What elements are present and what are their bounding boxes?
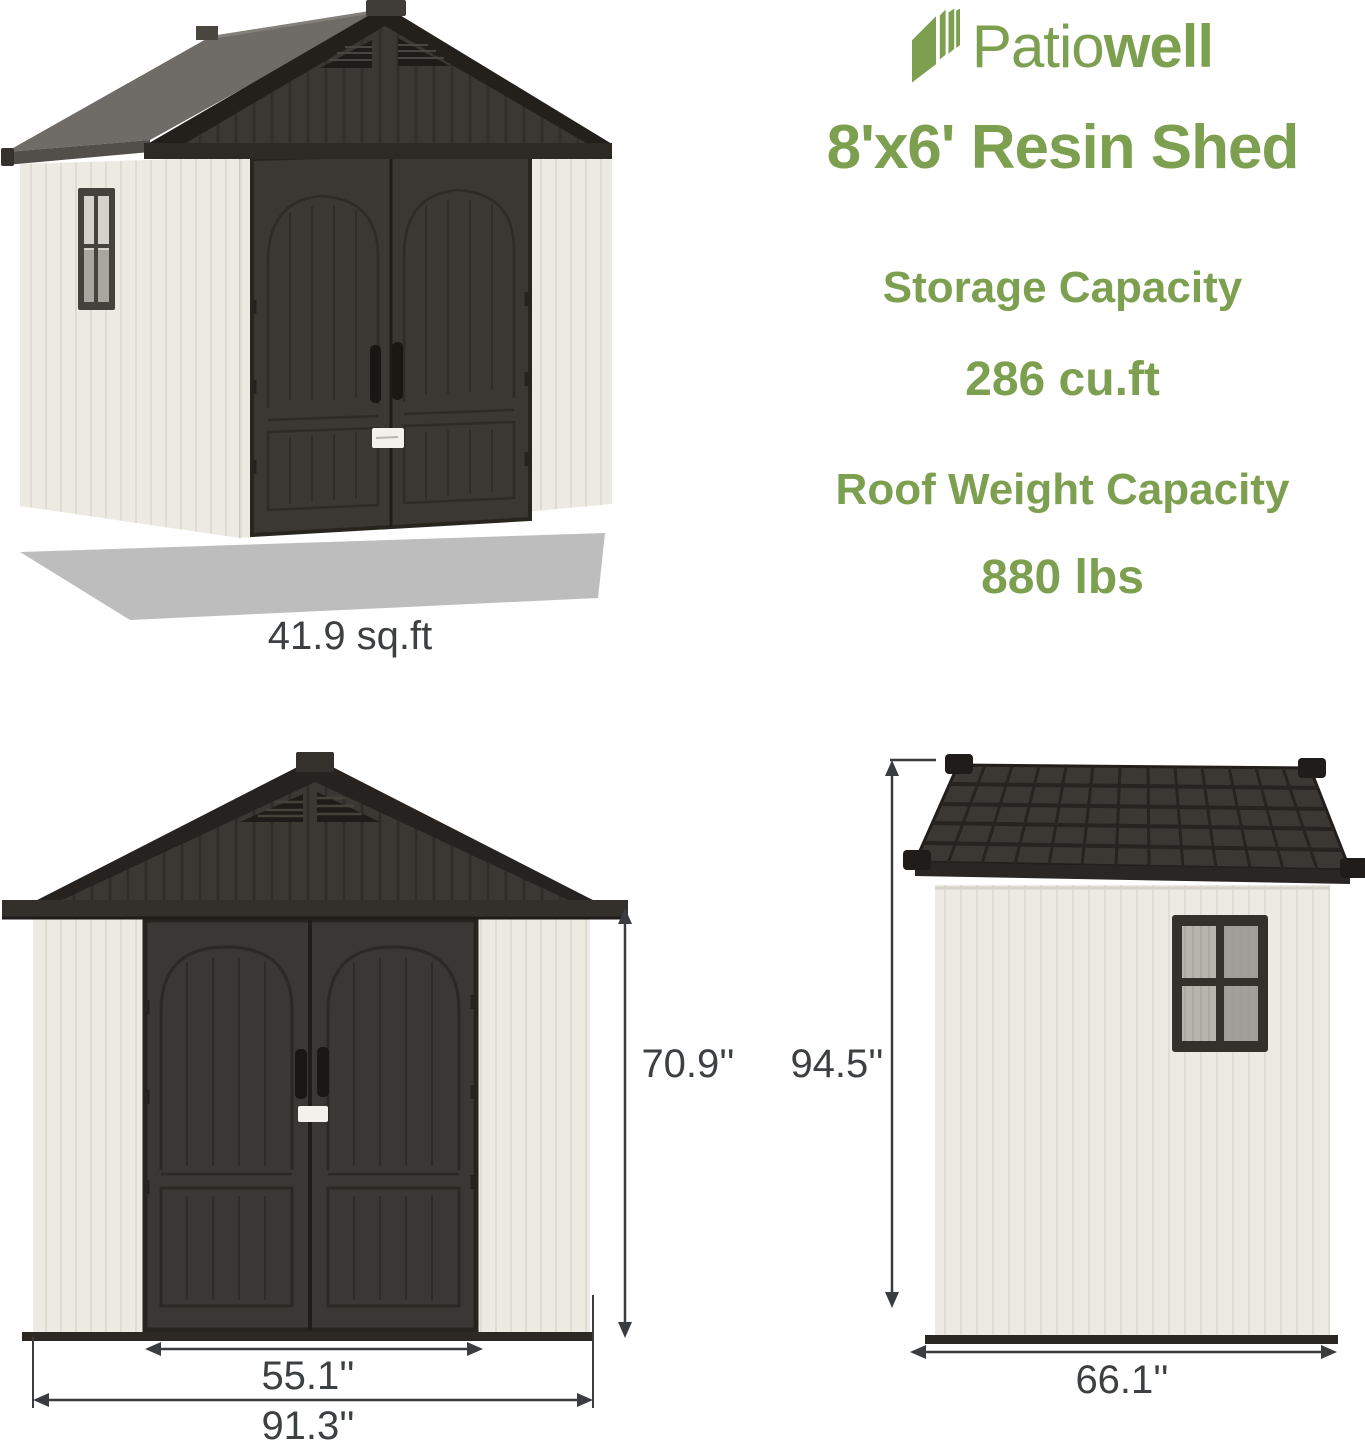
door-width-dimension: 55.1''	[261, 1356, 354, 1396]
overall-width-dimension: 91.3''	[261, 1406, 354, 1441]
shed-side-view	[880, 740, 1365, 1440]
roof-weight-capacity-label: Roof Weight Capacity	[760, 466, 1365, 514]
roof-weight-capacity-value: 880 lbs	[760, 552, 1365, 605]
roof-corner-cap	[1298, 758, 1326, 778]
storage-capacity-value: 286 cu.ft	[760, 354, 1365, 407]
side-window	[78, 188, 115, 310]
brand-word-regular: Patio	[972, 13, 1104, 80]
product-title: 8'x6' Resin Shed	[760, 114, 1365, 182]
door-handle	[317, 1047, 329, 1097]
door-latch	[298, 1106, 328, 1122]
front-right-wall-panel	[478, 918, 590, 1332]
door-handle	[392, 342, 403, 400]
side-depth-dimension: 66.1''	[1075, 1360, 1168, 1400]
side-roof	[903, 754, 1365, 884]
double-doors	[252, 151, 530, 535]
roof-cap	[366, 0, 406, 16]
side-height-dimension: 94.5''	[790, 1044, 883, 1084]
front-height-dimension: 70.9''	[641, 1044, 734, 1084]
ground-shadow	[20, 533, 605, 620]
side-wall	[20, 157, 240, 538]
brand-word-bold: well	[1104, 13, 1213, 80]
side-window	[1172, 915, 1268, 1052]
roof-corner-cap	[1340, 858, 1365, 878]
shed-perspective-view	[0, 0, 660, 680]
shed-base	[925, 1335, 1338, 1344]
shed-base	[22, 1332, 594, 1341]
shed-front-view	[0, 740, 660, 1440]
side-wall-panel	[935, 885, 1330, 1335]
storage-capacity-label: Storage Capacity	[760, 264, 1365, 312]
front-double-doors	[143, 918, 478, 1332]
roof-corner-cap	[903, 850, 931, 870]
floor-area-caption: 41.9 sq.ft	[268, 616, 433, 656]
patiowell-logo-icon	[912, 8, 960, 86]
roof-corner-cap	[945, 754, 973, 774]
brand-logo: Patiowell	[760, 8, 1365, 86]
brand-wordmark: Patiowell	[972, 17, 1213, 77]
roof-cap	[296, 752, 334, 772]
door-handle	[295, 1049, 307, 1099]
front-gable-roof	[2, 752, 628, 918]
front-left-wall-panel	[33, 918, 143, 1332]
product-infographic: Patiowell 8'x6' Resin Shed Storage Capac…	[0, 0, 1365, 1441]
door-handle	[370, 345, 381, 403]
